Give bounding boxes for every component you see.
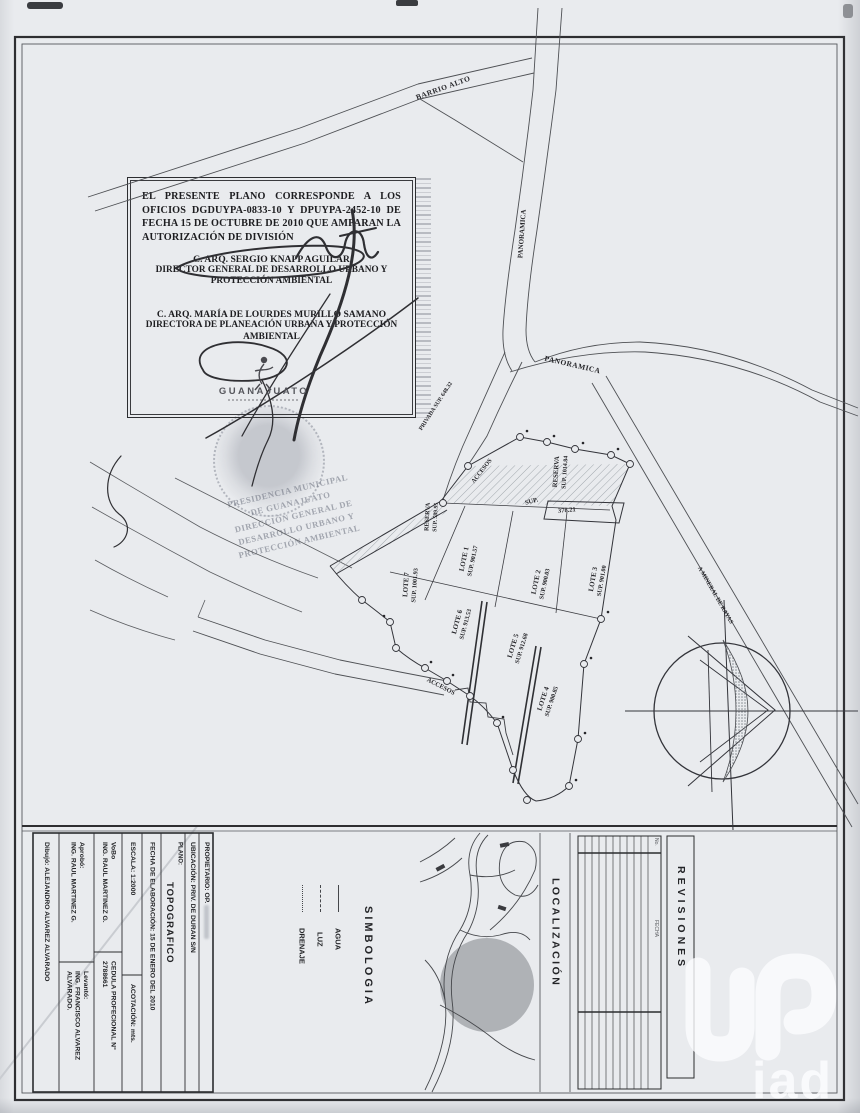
levanto-label: Levantó: <box>81 971 89 1089</box>
titleblock-cell-levanto: Levantó:ING. FRANCISCO ALVAREZ ALVARADO. <box>59 965 94 1089</box>
propietario-value: OP. <box>203 892 210 903</box>
legend-luz-line <box>320 885 321 912</box>
cedula-label: CEDULA PROFECIONAL N° <box>108 961 116 1089</box>
titleblock-cell-cedula: CEDULA PROFECIONAL N°2788661 <box>94 955 122 1089</box>
dibujo-value: ALEJANDRO ALVAREZ ALVARADO <box>43 867 50 981</box>
scanned-plan-sheet: PRESIDENCIA MUNICIPAL DE GUANAJUATO DIRE… <box>0 0 860 1113</box>
acotacion-label: ACOTACIÓN: <box>129 984 136 1027</box>
propietario-label: PROPIETARIO: <box>203 842 210 891</box>
titleblock-cell-acotacion: ACOTACIÓN: mts. <box>122 978 142 1089</box>
revisiones-col-no: No. <box>651 838 661 854</box>
escala-value: 1:2000 <box>129 874 136 895</box>
titleblock-cell-fecha: FECHA DE ELABORACIÓN: 15 DE ENERO DEL 20… <box>142 836 161 1089</box>
aprobo-label: Aprobó: <box>77 842 85 962</box>
dibujo-label: Dibujó: <box>43 842 50 865</box>
road-label: A MINERAL DE RAYAS <box>696 566 734 626</box>
titleblock-cell-aprobo: Aprobó:ING. RAUL MARTINEZ G. <box>59 836 94 962</box>
titleblock-cell-dibujo: Dibujó: ALEJANDRO ALVAREZ ALVARADO <box>33 836 59 1089</box>
plano-value: TOPOGRAFICO <box>163 882 175 1089</box>
road-labels: BARRIO ALTO PANORAMICA PANORAMICA A MINE… <box>415 74 734 697</box>
levanto-value: ING. FRANCISCO ALVAREZ ALVARADO. <box>64 971 81 1089</box>
legend-drenaje-line <box>302 885 303 912</box>
titleblock-cell-propietario: PROPIETARIO: OP. <box>199 836 213 1089</box>
titleblock-cell-vobo: VoBoING. RAUL MARTINEZ G. <box>94 836 122 952</box>
lot-area: SUP. 1001.93 <box>410 568 419 603</box>
simbologia-title: SIMBOLOGIA <box>356 900 378 1020</box>
iad-watermark: iad <box>636 950 860 1113</box>
acotacion-value: mts. <box>129 1029 136 1043</box>
guanajuato-logo-text: GUANAJUATO <box>212 386 316 397</box>
escala-label: ESCALA: <box>129 842 136 872</box>
localizacion-title: LOCALIZACIÓN <box>542 872 568 1022</box>
reserva-name: RESERVA <box>423 502 432 531</box>
titleblock-cell-ubicacion: UBICACIÓN: PRIV. DE DURAN S/N <box>185 836 199 1089</box>
simbologia-item-agua: AGUA <box>330 922 346 1002</box>
iad-watermark-text: iad <box>752 1052 833 1110</box>
vobo-label: VoBo <box>108 842 116 952</box>
terrain-lines <box>90 462 352 640</box>
simbologia-item-luz: LUZ <box>312 926 328 1006</box>
fecha-value: FECHA DE ELABORACIÓN: 15 DE ENERO DEL 20… <box>147 842 155 1089</box>
road-label: PANORAMICA <box>516 209 527 258</box>
easement-strips <box>462 601 541 784</box>
reserva-area: SUP. 589.95 <box>432 502 440 532</box>
lot-name: LOTE 7 <box>401 572 411 598</box>
plano-label: PLANO: <box>175 842 183 1089</box>
vobo-value: ING. RAUL MARTINEZ G. <box>100 842 108 952</box>
signature-strokes <box>108 210 418 547</box>
simbologia-item-drenaje: DRENAJE <box>294 922 310 1002</box>
location-highlight-circle <box>440 938 534 1032</box>
titleblock-cell-plano: PLANO:TOPOGRAFICO <box>161 836 185 1089</box>
cedula-value: 2788661 <box>100 961 108 1089</box>
redacted-owner-name <box>204 905 209 939</box>
titleblock-cell-escala: ESCALA: 1:2000 <box>122 836 142 975</box>
reserva-hatch <box>330 464 630 574</box>
ubicacion-value: UBICACIÓN: PRIV. DE DURAN S/N <box>188 842 196 1089</box>
revisiones-col-fecha: FECHA <box>651 920 661 946</box>
legend-agua-line <box>338 885 339 912</box>
area-value: 378.21 <box>558 506 576 515</box>
north-symbol <box>625 600 858 830</box>
road-label: PRIVADA SUP. 648.32 <box>418 381 454 432</box>
aprobo-value: ING. RAUL MARTINEZ G. <box>68 842 76 962</box>
